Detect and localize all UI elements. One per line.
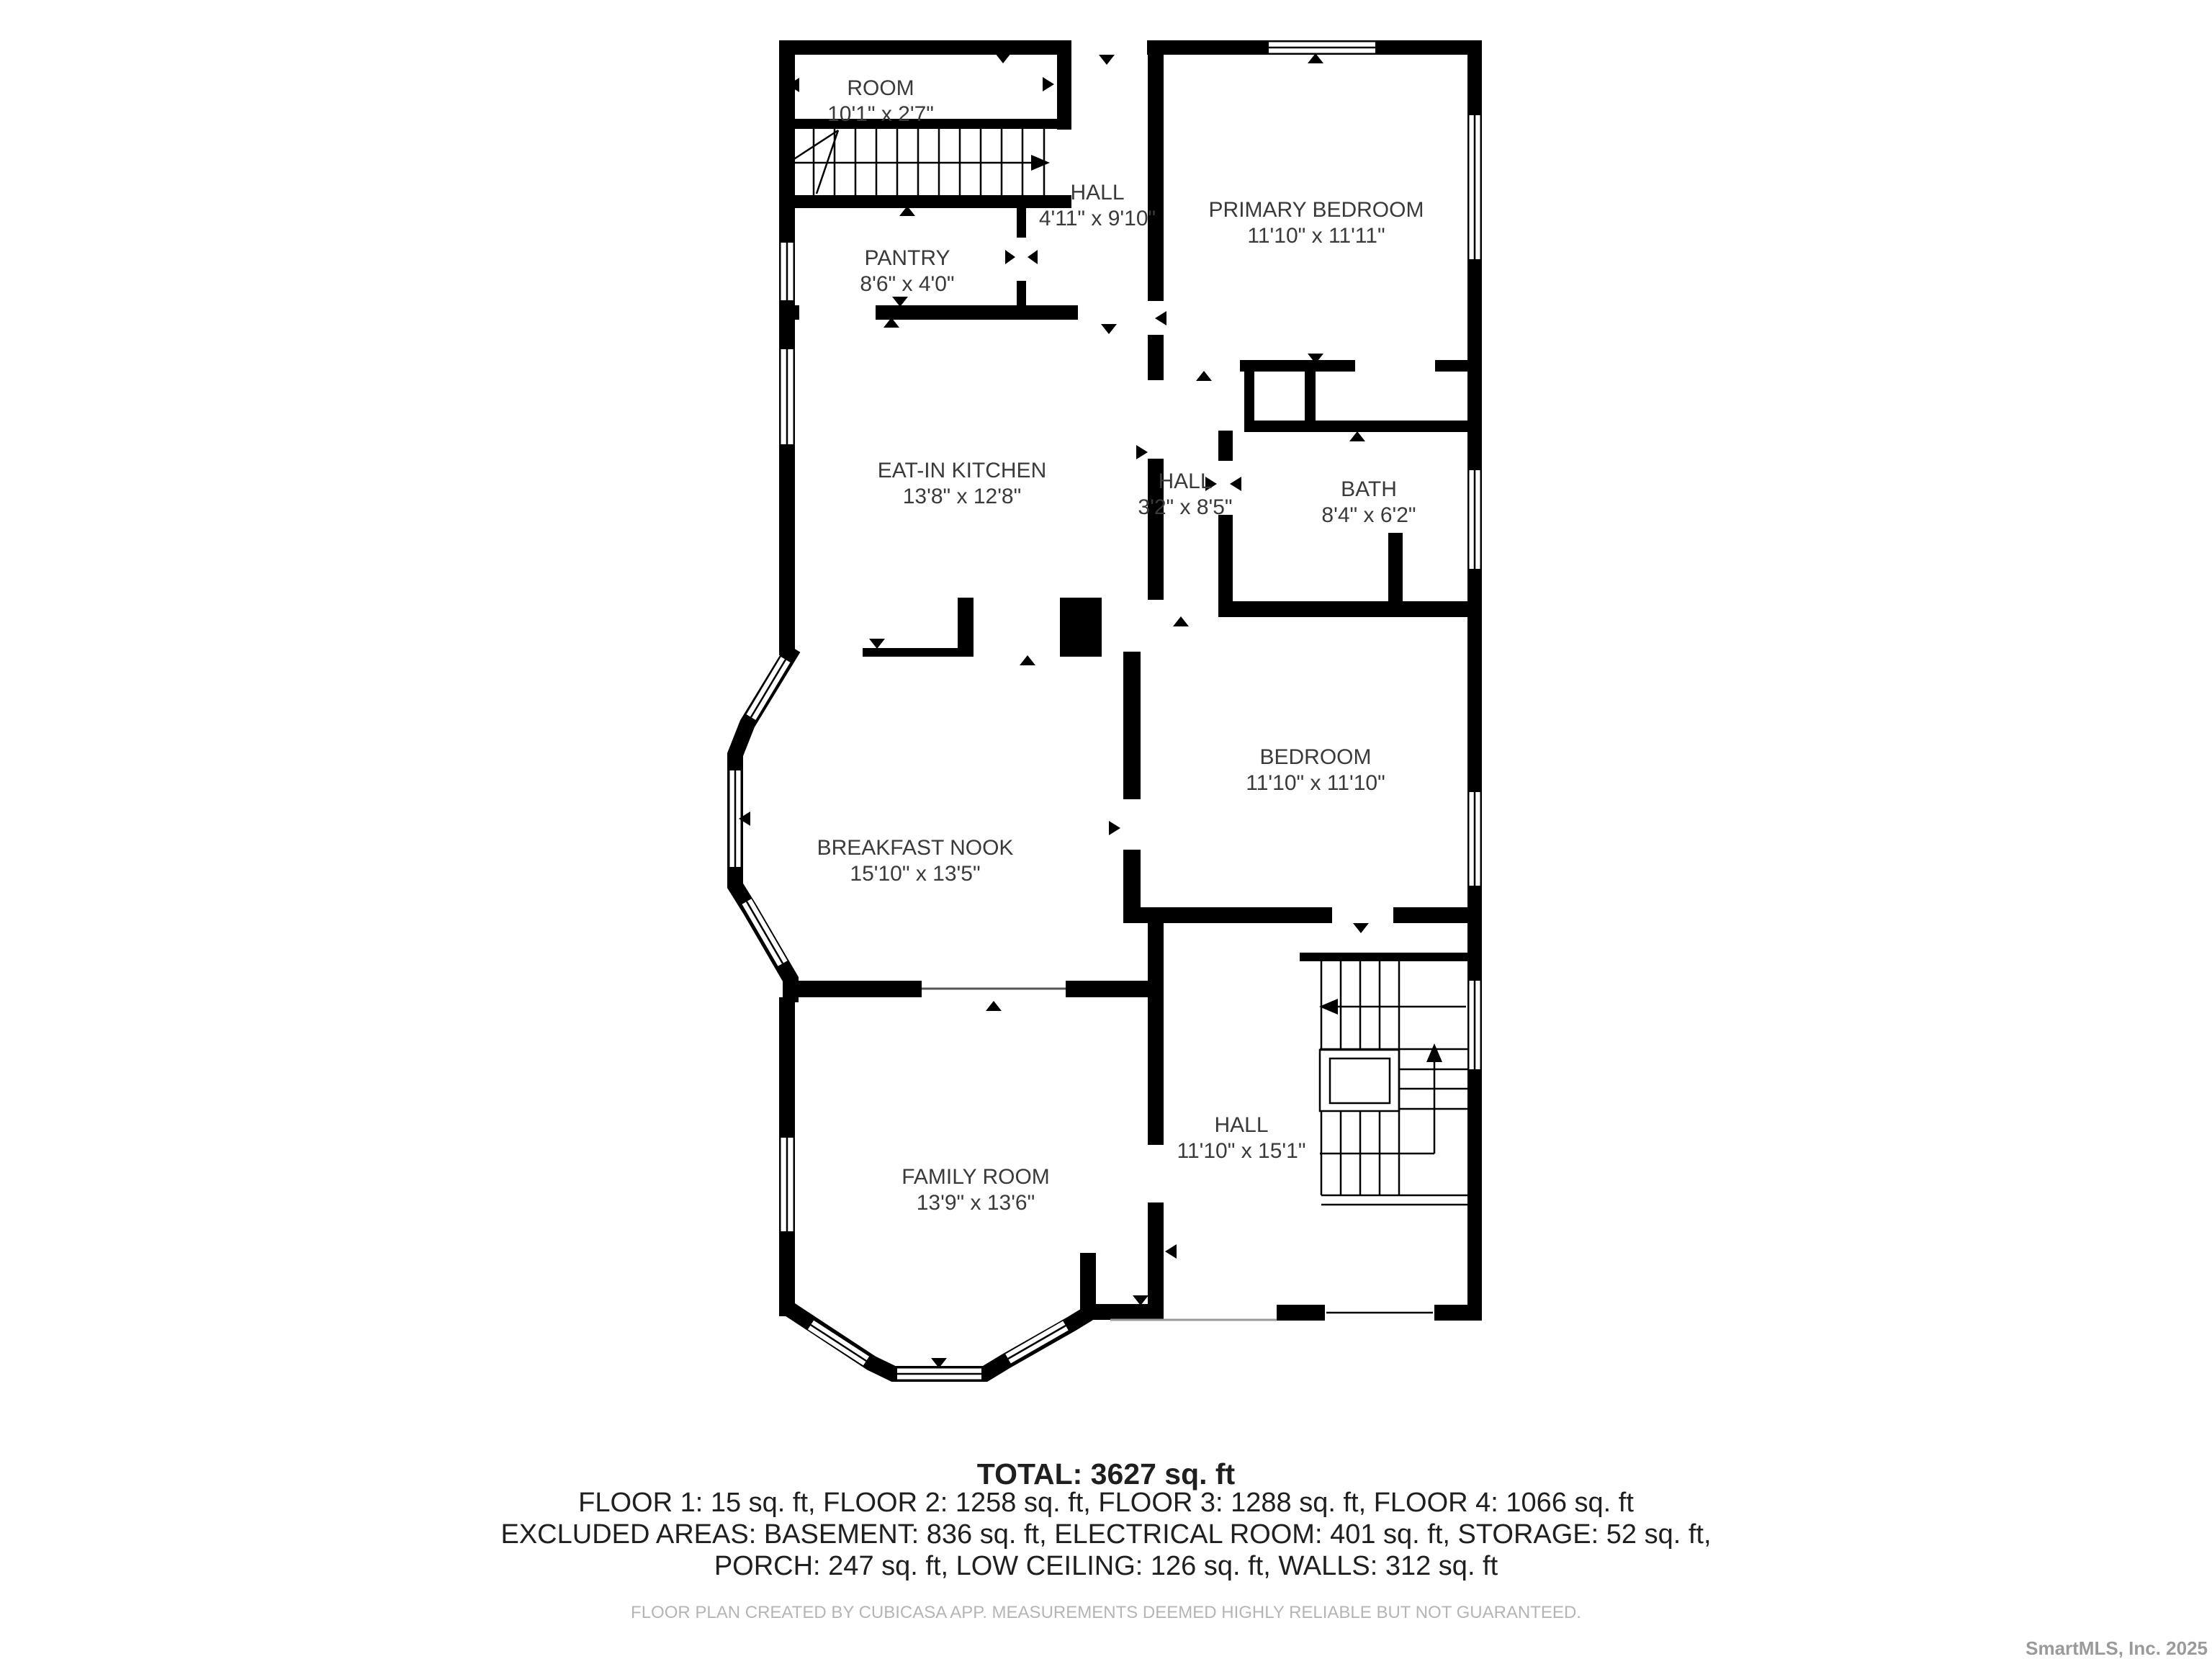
room-label-room: ROOM 10'1" x 2'7" bbox=[827, 76, 934, 127]
room-label-eat-in-kitchen: EAT-IN KITCHEN 13'8" x 12'8" bbox=[878, 458, 1046, 510]
room-name: ROOM bbox=[827, 76, 934, 102]
room-name: HALL bbox=[1138, 469, 1232, 495]
room-dims: 13'9" x 13'6" bbox=[902, 1190, 1050, 1216]
stair-arrow-up-icon bbox=[1426, 1043, 1442, 1062]
door-marker-icon bbox=[1043, 77, 1054, 91]
door-marker-icon bbox=[1101, 324, 1117, 334]
door-marker-icon bbox=[1173, 616, 1189, 626]
disclaimer-text: FLOOR PLAN CREATED BY CUBICASA APP. MEAS… bbox=[0, 1603, 2212, 1623]
door-marker-icon bbox=[1165, 1244, 1177, 1259]
floor-plan-page: ROOM 10'1" x 2'7" HALL 4'11" x 9'10" PAN… bbox=[0, 0, 2212, 1659]
stairs-lower bbox=[1319, 961, 1467, 1205]
room-label-breakfast-nook: BREAKFAST NOOK 15'10" x 13'5" bbox=[817, 835, 1014, 887]
room-label-bedroom: BEDROOM 11'10" x 11'10" bbox=[1246, 745, 1385, 796]
room-label-primary-bedroom: PRIMARY BEDROOM 11'10" x 11'11" bbox=[1209, 197, 1424, 249]
bay-window-left bbox=[735, 648, 793, 1002]
total-area-text: TOTAL: 3627 sq. ft bbox=[0, 1457, 2212, 1491]
door-markers bbox=[739, 53, 1369, 1368]
room-dims: 11'10" x 11'11" bbox=[1209, 223, 1424, 249]
door-marker-icon bbox=[1020, 655, 1035, 665]
floor-areas-text: FLOOR 1: 15 sq. ft, FLOOR 2: 1258 sq. ft… bbox=[0, 1488, 2212, 1519]
door-marker-icon bbox=[1353, 923, 1369, 933]
door-marker-icon bbox=[892, 297, 908, 307]
floor-plan-drawing bbox=[0, 0, 2212, 1659]
excluded-areas-text: EXCLUDED AREAS: BASEMENT: 836 sq. ft, EL… bbox=[0, 1519, 2212, 1550]
room-label-pantry: PANTRY 8'6" x 4'0" bbox=[860, 246, 954, 297]
door-marker-icon bbox=[1005, 250, 1015, 264]
room-dims: 13'8" x 12'8" bbox=[878, 484, 1046, 510]
room-dims: 8'6" x 4'0" bbox=[860, 271, 954, 297]
door-marker-icon bbox=[986, 1001, 1002, 1011]
room-label-hall-middle: HALL 3'2" x 8'5" bbox=[1138, 469, 1232, 521]
room-dims: 11'10" x 11'10" bbox=[1246, 770, 1385, 796]
room-dims: 10'1" x 2'7" bbox=[827, 102, 934, 127]
door-marker-icon bbox=[1099, 55, 1115, 65]
door-marker-icon bbox=[995, 53, 1011, 63]
room-dims: 15'10" x 13'5" bbox=[817, 861, 1014, 887]
room-name: PANTRY bbox=[860, 246, 954, 271]
room-dims: 8'4" x 6'2" bbox=[1321, 503, 1416, 529]
door-marker-icon bbox=[1349, 431, 1365, 441]
room-name: BREAKFAST NOOK bbox=[817, 835, 1014, 861]
room-dims: 11'10" x 15'1" bbox=[1177, 1138, 1306, 1164]
room-name: PRIMARY BEDROOM bbox=[1209, 197, 1424, 223]
room-label-family-room: FAMILY ROOM 13'9" x 13'6" bbox=[902, 1164, 1050, 1216]
door-marker-icon bbox=[1155, 311, 1166, 325]
room-name: EAT-IN KITCHEN bbox=[878, 458, 1046, 484]
stairs-upper bbox=[791, 129, 1050, 195]
stair-arrow-right-icon bbox=[1031, 155, 1050, 171]
door-marker-icon bbox=[1133, 1295, 1148, 1305]
room-dims: 4'11" x 9'10" bbox=[1039, 206, 1156, 232]
room-name: HALL bbox=[1177, 1112, 1306, 1138]
door-marker-icon bbox=[1308, 53, 1323, 63]
room-label-bath: BATH 8'4" x 6'2" bbox=[1321, 477, 1416, 529]
room-name: HALL bbox=[1039, 180, 1156, 206]
excluded-areas-text2: PORCH: 247 sq. ft, LOW CEILING: 126 sq. … bbox=[0, 1551, 2212, 1582]
room-name: BATH bbox=[1321, 477, 1416, 503]
door-marker-icon bbox=[869, 639, 885, 649]
door-marker-icon bbox=[1028, 250, 1038, 264]
room-label-hall-upper: HALL 4'11" x 9'10" bbox=[1039, 180, 1156, 232]
room-name: BEDROOM bbox=[1246, 745, 1385, 770]
door-marker-icon bbox=[1196, 371, 1212, 381]
room-dims: 3'2" x 8'5" bbox=[1138, 495, 1232, 521]
door-marker-icon bbox=[1109, 821, 1120, 835]
watermark-text: SmartMLS, Inc. 2025 bbox=[2026, 1637, 2208, 1659]
room-label-hall-lower: HALL 11'10" x 15'1" bbox=[1177, 1112, 1306, 1164]
room-name: FAMILY ROOM bbox=[902, 1164, 1050, 1190]
door-marker-icon bbox=[1136, 445, 1148, 459]
